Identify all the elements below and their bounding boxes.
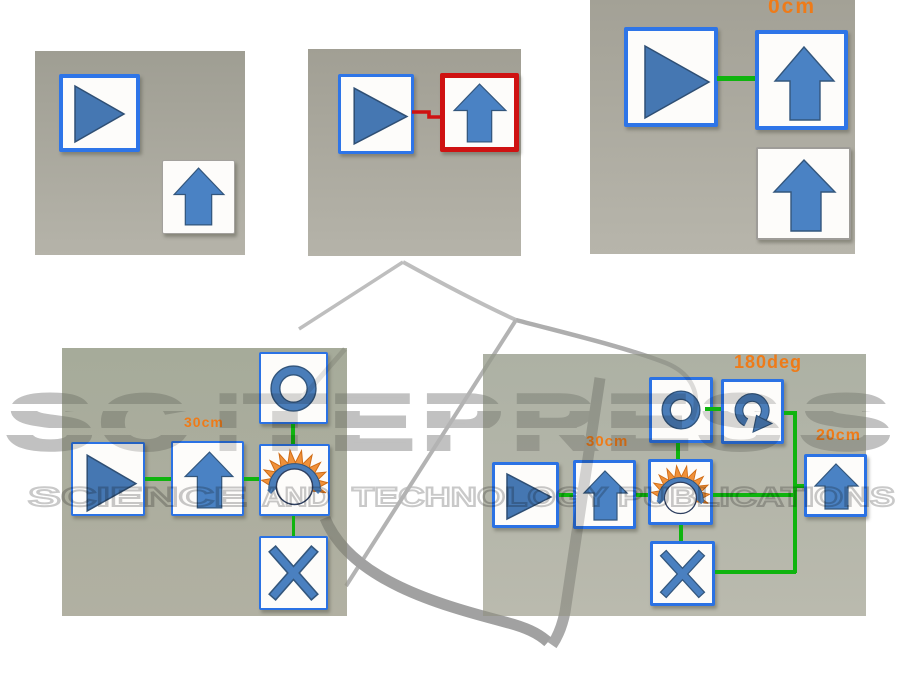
- svg-text:S: S: [698, 378, 782, 466]
- svg-text:E: E: [330, 378, 414, 466]
- svg-text:SCIENCE: SCIENCE: [28, 482, 247, 512]
- svg-text:P: P: [422, 378, 502, 466]
- svg-text:AND: AND: [262, 482, 330, 512]
- svg-text:C: C: [99, 378, 187, 466]
- svg-text:E: E: [606, 378, 690, 466]
- svg-text:I: I: [216, 378, 240, 466]
- svg-text:T: T: [245, 378, 325, 466]
- svg-text:S: S: [6, 378, 94, 466]
- svg-text:S: S: [800, 378, 892, 466]
- svg-text:TECHNOLOGY: TECHNOLOGY: [352, 482, 608, 512]
- svg-text:PUBLICATIONS: PUBLICATIONS: [618, 482, 895, 512]
